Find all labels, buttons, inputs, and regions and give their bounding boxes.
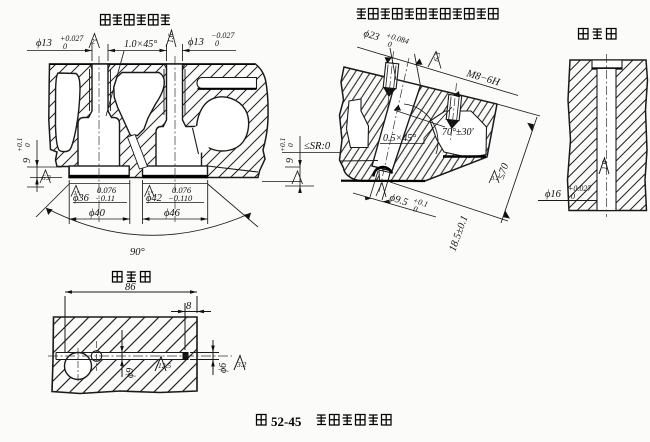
svg-text:9: 9 (22, 158, 33, 163)
svg-text:1.0×45°: 1.0×45° (124, 39, 157, 50)
svg-text:0: 0 (286, 143, 295, 147)
svg-text:0: 0 (23, 143, 32, 147)
svg-text:52-45: 52-45 (271, 414, 302, 429)
svg-text:ϕ42: ϕ42 (146, 193, 163, 204)
svg-text:ϕ40: ϕ40 (89, 208, 106, 219)
svg-text:1.6: 1.6 (166, 33, 175, 43)
svg-text:2°: 2° (91, 38, 98, 46)
svg-text:≤SR:0: ≤SR:0 (304, 141, 331, 152)
svg-text:70°±30′: 70°±30′ (442, 127, 474, 138)
svg-text:ϕ36: ϕ36 (73, 193, 90, 204)
svg-text:ϕ13: ϕ13 (188, 37, 204, 48)
svg-text:ϕ13: ϕ13 (36, 38, 52, 49)
svg-text:−0.110: −0.110 (168, 193, 193, 203)
svg-text:ϕ9: ϕ9 (125, 368, 136, 378)
svg-text:0.5×45°: 0.5×45° (383, 133, 416, 144)
svg-text:3.2: 3.2 (490, 175, 500, 182)
svg-text:1.6: 1.6 (600, 160, 609, 170)
svg-text:0: 0 (215, 39, 219, 48)
svg-text:0: 0 (571, 192, 575, 201)
svg-text:12.5: 12.5 (158, 361, 171, 370)
svg-text:9: 9 (285, 158, 296, 163)
svg-text:6.3: 6.3 (42, 174, 51, 182)
svg-text:ϕ6: ϕ6 (218, 363, 229, 373)
svg-text:86: 86 (125, 282, 136, 293)
svg-text:−0.11: −0.11 (95, 193, 115, 203)
svg-text:8: 8 (186, 301, 192, 312)
svg-text:3.2: 3.2 (236, 360, 247, 369)
svg-text:ϕ46: ϕ46 (164, 208, 181, 219)
svg-text:ϕ16: ϕ16 (545, 189, 562, 200)
svg-text:0: 0 (63, 42, 67, 51)
svg-text:90°: 90° (130, 247, 146, 258)
